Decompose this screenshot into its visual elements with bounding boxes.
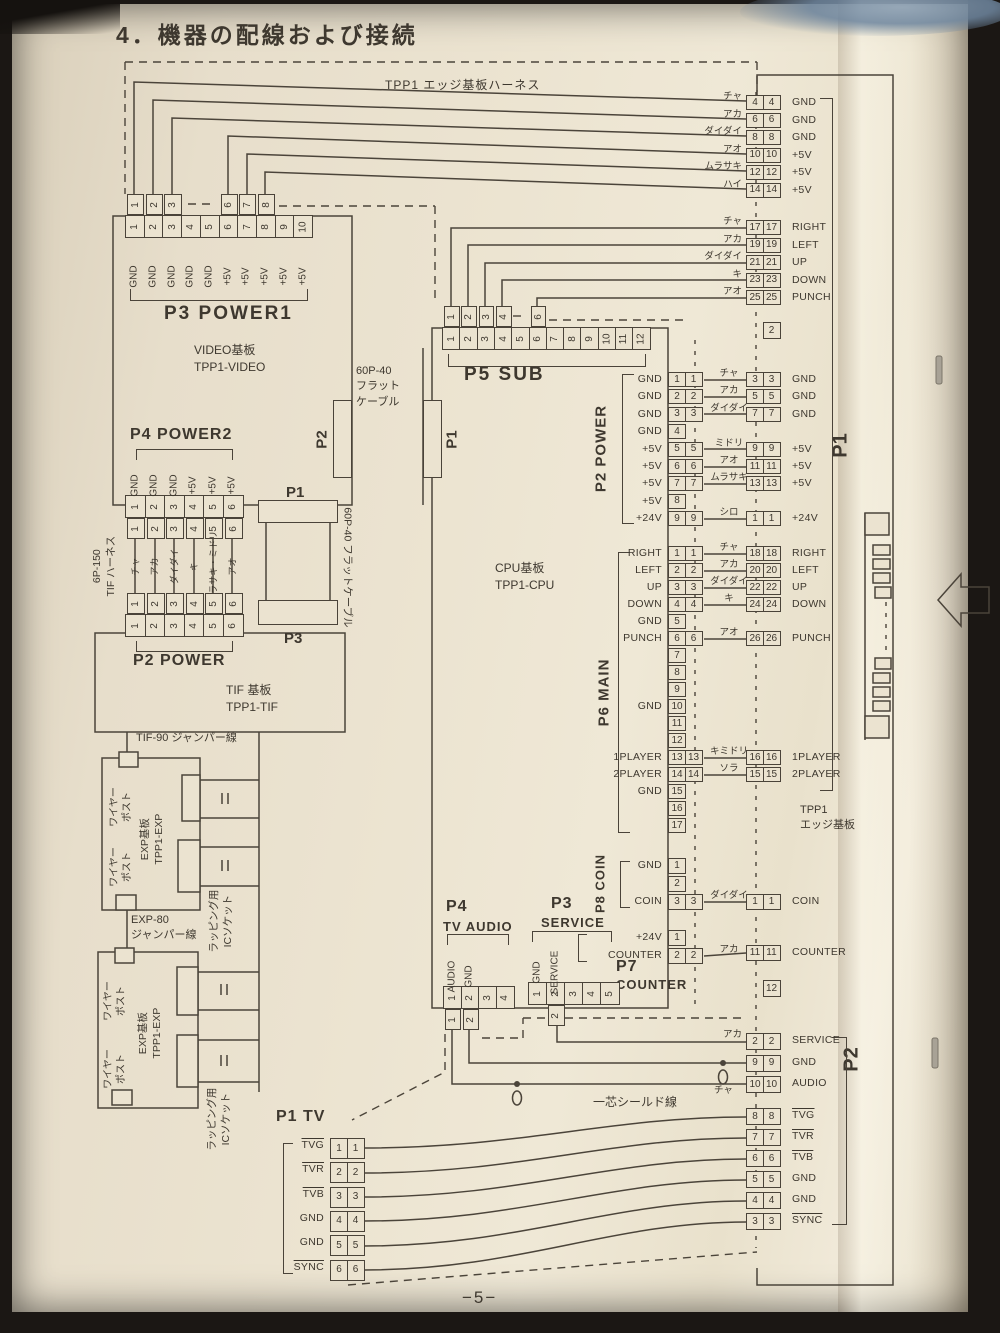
signal-label: GND [560,373,662,385]
harness-pin-box: 2 [461,306,477,327]
signal-label: GND [792,1172,816,1184]
pin-box: 2 [461,986,480,1009]
pin-box: 10 [746,148,764,163]
signal-label: COIN [560,895,662,907]
pin-row: 2525PUNCHアオ [700,290,1000,305]
pin-box: 9 [668,682,686,697]
signal-label: DOWN [792,274,826,286]
signal-label: GND [792,131,816,143]
pin-box: 1 [668,930,686,946]
p1-tv-title: P1 TV [276,1108,325,1126]
wire-color-label: ダイダイ [700,123,742,137]
pin-box: 16 [746,750,764,765]
pin-box: 3 [330,1187,348,1208]
pin-row: 44GND [240,1211,540,1232]
harness-pin-box: 3 [164,194,181,215]
signal-label: GND [145,447,165,491]
pin-row: 1919LEFTアカ [700,238,1000,253]
pin-box: 2 [668,563,686,578]
pin-row: 99GND [700,1055,1000,1072]
pin-row: 1212+5Vムラサキ [700,165,1000,180]
signal-label: +5V [275,238,294,282]
pin-row: 55GND [700,1171,1000,1188]
pin-box: 4 [668,424,686,439]
p5-sub-title: P5 SUB [464,364,545,386]
pin-row: 16 [560,801,860,816]
pin-row: 2 [700,322,1000,339]
pin-box: 5 [763,1171,781,1188]
pin-box: 1 [763,894,781,910]
pin-row: 33GND [700,372,1000,387]
signal-label: TVB [240,1188,324,1200]
pin-box: 14 [746,183,764,198]
signal-label: GND [144,238,163,282]
exp80-jumper-label: EXP-80ジャンパー線 [131,913,196,944]
pin-row: 12 [700,980,1000,997]
pin-box: 9 [668,511,686,526]
pin-box: 2 [763,1033,781,1050]
pin-box: 4 [763,1192,781,1209]
pin-box: 21 [763,255,781,270]
pin-box: 1 [746,894,764,910]
pin-row: 9 [560,682,860,697]
pin-row: 77GND [700,407,1000,422]
pin-box: 4 [347,1211,365,1232]
signal-label: GND [560,408,662,420]
harness-pin-box: 7 [239,194,256,215]
signal-label: TVG [240,1139,324,1151]
signal-label: +5V [237,238,256,282]
pin-box: 1 [763,511,781,526]
signal-label: SYNC [792,1214,822,1226]
pin-box: 6 [223,495,244,518]
pin-box: 8 [256,215,276,238]
pin-box: 4 [494,327,513,350]
pin-box: 17 [668,818,686,833]
pin-row: 1GND [560,858,860,874]
pin-box: 7 [746,1129,764,1146]
pin-box: 11 [746,945,764,961]
pin-box: 11 [746,459,764,474]
pin-box: 12 [746,165,764,180]
pin-box: 12 [763,165,781,180]
pin-box: 6 [746,113,764,128]
pin-box: 5 [668,614,686,629]
pin-row: 15152PLAYER [700,767,1000,782]
pin-box: 2 [668,389,686,404]
pin-box: 5 [347,1235,365,1256]
wire-color-label: アカ [145,539,165,593]
pin-box: 17 [746,220,764,235]
page-number: −5− [462,1288,497,1308]
pin-row: 2020LEFT [700,563,1000,578]
signal-label: GND [560,859,662,871]
harness-pin-box: 5 [205,593,223,614]
signal-label: +5V [792,166,812,178]
pin-box: 11 [763,945,781,961]
pin-row: 66GNDアカ [700,113,1000,128]
wire-color-label: アオ [223,539,243,593]
pin-box: 2 [145,495,166,518]
signal-label: +5V [219,238,238,282]
pin-row: 33TVB [240,1187,540,1208]
signal-label: +5V [560,477,662,489]
pin-box: 7 [763,1129,781,1146]
pin-row: 88TVG [700,1108,1000,1125]
pin-row: 16161PLAYER [700,750,1000,765]
bracket [136,641,233,652]
pin-box: 1 [528,982,548,1005]
signal-label: GND [792,408,816,420]
pin-box: 1 [668,858,686,874]
pin-box: 8 [763,130,781,145]
video-p1-conn-label: P1 [286,484,304,501]
tif-harness-label: 6P-150TIF ハーネス [90,520,118,612]
signal-label: GND [560,390,662,402]
pin-box: 12 [763,980,781,997]
pin-box: 5 [763,389,781,404]
pin-row: 99+5V [700,442,1000,457]
pin-box: 1 [330,1138,348,1159]
pin-row: 17 [560,818,860,833]
pin-box: 22 [746,580,764,595]
pin-box: 3 [668,894,686,910]
pin-row: 1010+5Vアオ [700,148,1000,163]
pin-box: 19 [746,238,764,253]
pin-box: 2 [459,327,478,350]
pin-box: 6 [763,113,781,128]
signal-label: GND [792,1193,816,1205]
pin-box: 1 [347,1138,365,1159]
pin-box: 1 [125,215,145,238]
signal-label: GND [792,390,816,402]
pin-box: 15 [763,767,781,782]
harness-pin-box: 6 [221,194,238,215]
pin-row: 11COIN [700,894,1000,910]
p7-counter-subtitle: COUNTER [616,977,687,992]
signal-label: DOWN [560,598,662,610]
signal-label: +5V [560,443,662,455]
pin-box: 9 [763,442,781,457]
pin-box: 3 [668,407,686,422]
harness-pin-box: 1 [444,306,460,327]
pin-row: 11 [560,716,860,731]
signal-label: UP [792,256,807,268]
exp-board-label: EXP基板TPP1-EXP [136,990,164,1076]
pin-box: 8 [668,494,686,509]
signal-label: +5V [560,460,662,472]
pin-row: 8 [560,665,860,680]
signal-label: GND [560,615,662,627]
pin-box: 15 [746,767,764,782]
pin-box: 4 [763,95,781,110]
pin-box: 8 [746,130,764,145]
pin-row: 1414+5Vハイ [700,183,1000,198]
pin-box: 7 [668,476,686,491]
harness-pin-box: 2 [463,1009,479,1030]
pin-box: 8 [563,327,582,350]
pin-box: 6 [668,631,686,646]
signal-label: LEFT [792,564,819,576]
pin-box: 3 [746,372,764,387]
pin-box: 3 [164,495,185,518]
harness-label: TPP1 エッジ基板ハーネス [385,76,540,93]
pin-box: 2 [746,1033,764,1050]
pin-box: 13 [668,750,686,765]
signal-label: PUNCH [792,291,831,303]
pin-box: 7 [546,327,565,350]
pin-box: 4 [181,215,201,238]
pin-box: 9 [763,1055,781,1072]
wire-color-label: チャ [700,88,742,102]
harness-pin-box: 2 [147,518,165,539]
harness-pin-box: 3 [166,593,184,614]
pin-box: 10 [668,699,686,714]
pin-box: 10 [763,148,781,163]
pin-row: 77TVR [700,1129,1000,1146]
page-title: 4．機器の配線および接続 [116,16,418,50]
pin-box: 5 [668,442,686,457]
signal-label: RIGHT [792,547,826,559]
pin-box: 3 [347,1187,365,1208]
pin-row: 55GND [240,1235,540,1256]
ic-socket-label: ラッピング用ICソケット [207,872,235,970]
video-p2-connector [333,400,352,478]
pin-box: 2 [330,1162,348,1183]
pin-box: 9 [580,327,599,350]
signal-label: GND [560,785,662,797]
p4-power2-title: P4 POWER2 [130,426,232,444]
harness-pin-box: 2 [548,1005,565,1026]
pin-box: 9 [746,442,764,457]
pin-box: 24 [746,597,764,612]
wire-post-label: ワイヤーポスト [102,1037,128,1101]
pin-box: 18 [746,546,764,561]
signal-label: +5V [256,238,275,282]
pin-box: 3 [763,372,781,387]
signal-label: 2PLAYER [792,768,841,780]
video-board-label: VIDEO基板TPP1-VIDEO [194,342,265,377]
pin-box: 6 [529,327,548,350]
pin-row: 22SERVICEアカ [700,1033,1000,1050]
signal-label: +5V [293,238,312,282]
pin-box: 6 [746,1150,764,1167]
pin-box: 6 [347,1260,365,1281]
pin-box: 3 [564,982,584,1005]
wire-color-label: アオ [700,283,742,297]
pin-box: 5 [200,215,220,238]
pin-box: 3 [763,1213,781,1230]
pin-box: 4 [746,95,764,110]
signal-label: COIN [792,895,819,907]
signal-label: 1PLAYER [560,751,662,763]
pin-row: 1010AUDIO [700,1076,1000,1093]
pin-box: 10 [763,1076,781,1093]
pin-box: 5 [203,495,224,518]
signal-label: 2PLAYER [560,768,662,780]
flat-cable-label-side: 60P-40 フラットケーブル [341,488,356,648]
pin-box: 5 [511,327,530,350]
wire-color-label: チャ [125,539,145,593]
signal-label: UP [560,581,662,593]
pin-row: 66SYNC [240,1260,540,1281]
wire-color-label: ムラサキ・ミドリ [203,539,223,593]
pin-box: 4 [330,1211,348,1232]
tif-board-label: TIF 基板TPP1-TIF [226,682,278,717]
harness-pin-box: 2 [147,593,165,614]
harness-pin-box: 1 [127,518,145,539]
signal-label: GND [792,114,816,126]
pin-box: 26 [746,631,764,646]
harness-pin-box: 1 [127,194,144,215]
pin-box: 23 [763,273,781,288]
pin-box: 4 [668,597,686,612]
pin-box: 11 [763,459,781,474]
pin-box: 4 [496,986,515,1009]
signal-label: RIGHT [560,547,662,559]
pin-row: 2222UP [700,580,1000,595]
pin-box: 11 [668,716,686,731]
pin-box: 10 [746,1076,764,1093]
pin-box: 26 [763,631,781,646]
pin-box: 3 [164,614,185,637]
harness-pin-box: 3 [479,306,495,327]
pin-row: 55GND [700,389,1000,404]
pin-row: 7 [560,648,860,663]
signal-label: 1PLAYER [792,751,841,763]
pin-box: 8 [746,1108,764,1125]
pin-box: 1 [125,614,146,637]
pin-box: 6 [668,459,686,474]
signal-label: GND [560,425,662,437]
pin-box: 15 [668,784,686,799]
signal-label: PUNCH [560,632,662,644]
harness-pin-box: 3 [166,518,184,539]
pin-row: 11TVG [240,1138,540,1159]
p2-power-tif-title: P2 POWER [133,652,225,670]
signal-label: LEFT [560,564,662,576]
p3-power1-title: P3 POWER1 [164,303,293,325]
signal-label: +5V [792,443,812,455]
pin-box: 4 [746,1192,764,1209]
pin-box: 11 [615,327,634,350]
signal-label: TVG [792,1109,815,1121]
shield-wire-label: 一芯シールド線 [593,1094,677,1111]
signal-label: GND [162,238,181,282]
pin-box: 6 [223,614,244,637]
pin-row: 44GND [700,1192,1000,1209]
pin-box: 6 [219,215,239,238]
harness-pin-box: 2 [146,194,163,215]
pin-row: 1111+5V [700,459,1000,474]
harness-pin-box: 1 [127,593,145,614]
pin-box: 19 [763,238,781,253]
tif90-jumper-label: TIF-90 ジャンパー線 [136,731,237,746]
signal-label: GND [200,238,219,282]
p4-tv-audio-subtitle: TV AUDIO [443,919,513,934]
wire-color-label: チャ [700,213,742,227]
pin-box: 10 [598,327,617,350]
pin-row: 2626PUNCH [700,631,1000,646]
wire-color-label: キ [184,539,204,593]
pin-box: 7 [746,407,764,422]
signal-label: GND [125,238,144,282]
harness-pin-box: 1 [445,1009,461,1030]
pin-box: 22 [763,580,781,595]
signal-label: TVR [792,1130,814,1142]
signal-label: TVR [240,1163,324,1175]
pin-row: 33SYNC [700,1213,1000,1230]
pin-row: 10GND [560,699,860,714]
signal-label: GND [792,373,816,385]
wire-color-label: ダイダイ [700,248,742,262]
pin-box: 1 [746,511,764,526]
cpu-p1-conn-label: P1 [444,424,461,456]
pin-box: 3 [746,1213,764,1230]
pin-box: 4 [582,982,602,1005]
wire-color-label: アオ [700,141,742,155]
pin-box: 1 [668,372,686,387]
cpu-p1-connector [423,400,442,478]
pin-box: 7 [237,215,257,238]
pin-row: 88GNDダイダイ [700,130,1000,145]
pin-box: 17 [763,220,781,235]
pin-box: 1 [442,327,461,350]
wire-post-label: ワイヤーポスト [108,835,134,899]
wire-post-label: ワイヤーポスト [102,969,128,1033]
signal-label: +5V [560,495,662,507]
pin-box: 7 [763,407,781,422]
wire-color-label: キ [700,266,742,280]
pin-box: 20 [763,563,781,578]
pin-box: 5 [746,389,764,404]
pin-row: 2323DOWNキ [700,273,1000,288]
pin-box: 13 [746,476,764,491]
pin-row: 1717RIGHTチャ [700,220,1000,235]
pin-box: 9 [746,1055,764,1072]
pin-box: 2 [144,215,164,238]
flat-cable-label-top: 60P-40フラットケーブル [356,364,400,410]
pin-box: 4 [184,495,205,518]
pin-box: 5 [746,1171,764,1188]
pin-box: 8 [668,665,686,680]
harness-pin-box: 4 [186,518,204,539]
pin-box: 13 [763,476,781,491]
pin-box: 2 [763,322,781,339]
signal-label: +5V [223,447,243,491]
pin-row: 1818RIGHT [700,546,1000,561]
pin-box: 25 [746,290,764,305]
signal-label: COUNTER [560,949,662,961]
pin-box: 16 [668,801,686,816]
pin-box: 9 [275,215,295,238]
wire-color-label: ムラサキ [700,158,742,172]
pin-box: 3 [477,327,496,350]
pin-row: 2424DOWN [700,597,1000,612]
signal-label: GND [240,1212,324,1224]
tif-p3-conn-label: P3 [284,630,302,647]
signal-label: DOWN [792,598,826,610]
signal-label: TVB [792,1151,813,1163]
signal-label: UP [792,581,807,593]
signal-label: GND [792,1056,816,1068]
signal-label: +24V [560,512,662,524]
signal-label: +24V [560,931,662,943]
pin-row: 66TVB [700,1150,1000,1167]
pin-box: 23 [746,273,764,288]
wire-color-label: アカ [700,1026,742,1040]
pin-box: 6 [763,1150,781,1167]
